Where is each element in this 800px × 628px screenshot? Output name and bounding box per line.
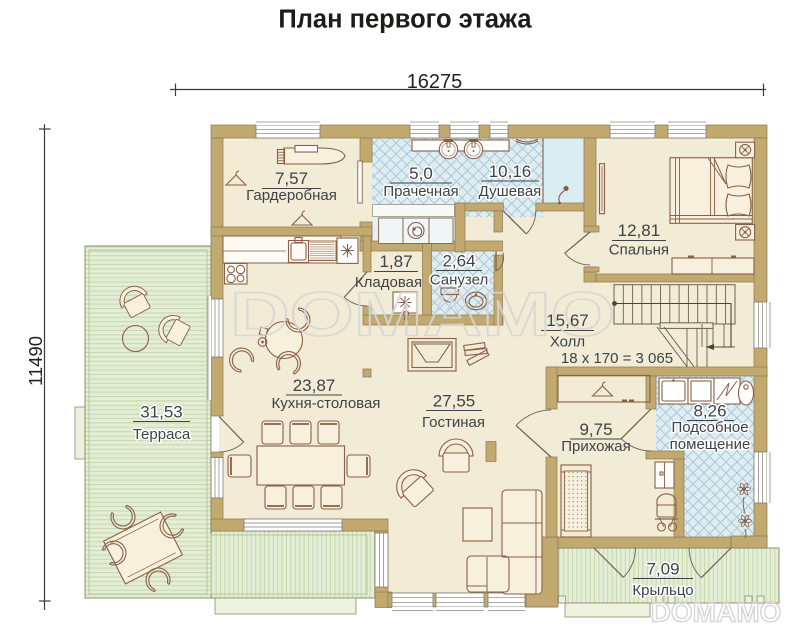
svg-text:16275: 16275 bbox=[407, 71, 463, 93]
svg-text:12,81: 12,81 bbox=[618, 221, 661, 240]
svg-text:Кухня-столовая: Кухня-столовая bbox=[272, 395, 381, 412]
svg-text:31,53: 31,53 bbox=[140, 403, 183, 422]
svg-text:27,55: 27,55 bbox=[433, 392, 476, 411]
svg-text:7,09: 7,09 bbox=[646, 560, 679, 579]
svg-text:План первого этажа: План первого этажа bbox=[278, 6, 532, 34]
svg-text:1,87: 1,87 bbox=[379, 252, 412, 271]
svg-text:Спальня: Спальня bbox=[609, 242, 669, 259]
svg-text:7,57: 7,57 bbox=[275, 169, 308, 188]
svg-text:18 х 170 = 3 065: 18 х 170 = 3 065 bbox=[561, 350, 673, 367]
svg-text:10,16: 10,16 bbox=[489, 162, 532, 181]
svg-text:23,87: 23,87 bbox=[293, 376, 336, 395]
svg-text:Подсобное: Подсобное bbox=[671, 419, 748, 436]
svg-text:2,64: 2,64 bbox=[442, 252, 475, 271]
svg-text:11490: 11490 bbox=[25, 336, 46, 386]
svg-text:Прихожая: Прихожая bbox=[561, 438, 631, 455]
svg-text:9,75: 9,75 bbox=[579, 420, 612, 439]
svg-text:Гардеробная: Гардеробная bbox=[246, 187, 337, 204]
svg-text:Душевая: Душевая bbox=[479, 183, 542, 200]
svg-text:Прачечная: Прачечная bbox=[383, 183, 458, 200]
svg-text:DOMAMO: DOMAMO bbox=[651, 597, 782, 628]
svg-text:помещение: помещение bbox=[670, 436, 751, 453]
svg-text:8,26: 8,26 bbox=[693, 402, 726, 421]
svg-text:Гостиная: Гостиная bbox=[422, 414, 485, 431]
svg-text:5,0: 5,0 bbox=[409, 164, 433, 183]
svg-text:DOMAMO: DOMAMO bbox=[230, 281, 615, 350]
svg-text:Терраса: Терраса bbox=[133, 426, 191, 443]
